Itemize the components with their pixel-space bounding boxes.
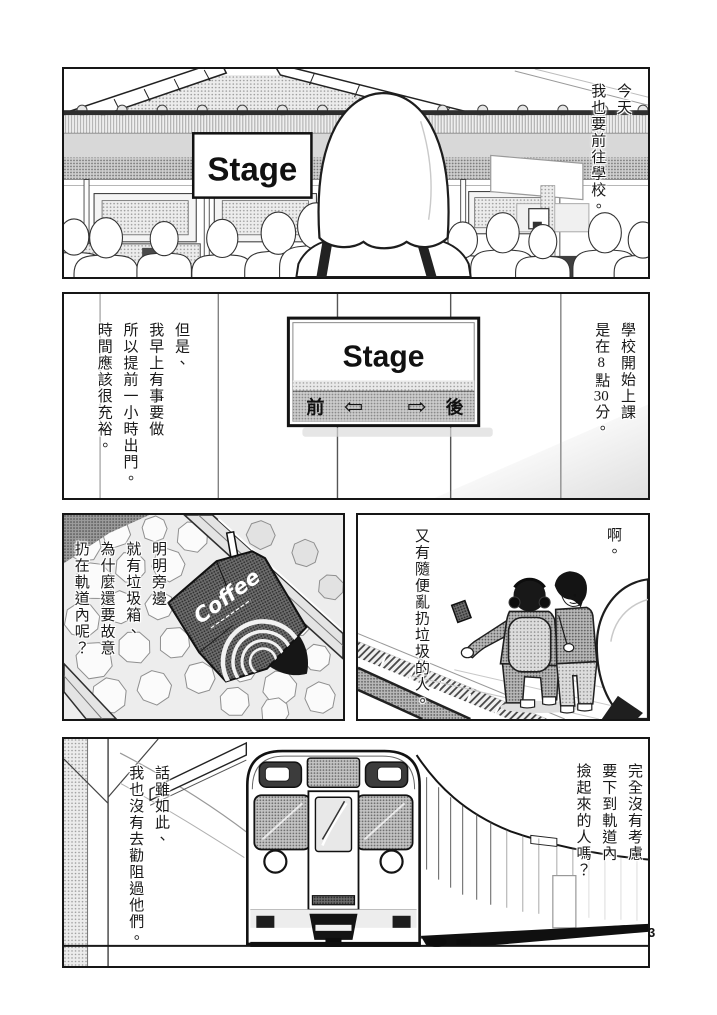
manga-page: Stage 今天 我也要前往學校。 [0, 0, 717, 1015]
student-right [555, 571, 597, 713]
headphone-icon [509, 597, 520, 608]
narration-column: 我也沒有去勸阻過他們。 [126, 765, 145, 961]
page-number: 3 [648, 925, 655, 940]
narration-column: 又有隨便亂扔垃圾的人。 [411, 528, 430, 718]
narration-column: 是在8點30分。 [592, 322, 611, 492]
step-plate [312, 896, 354, 905]
panel2-narration-left: 但是、 我早上有事要做 所以提前一小時出門。 時間應該很充裕。 [87, 322, 190, 494]
panel-4-train: 完全沒有考慮 要下到軌道內 撿起來的人嗎？ 話雖如此、 我也沒有去勸阻過他們。 [62, 737, 650, 968]
panel-2-sign: Stage 前 ⇦ ⇨ 後 學校開始上課 是在8點30分。 但是、 我早上有事要… [62, 292, 650, 500]
panel2-narration-right: 學校開始上課 是在8點30分。 [585, 322, 637, 492]
narration-column: 但是、 [171, 322, 190, 494]
narration-column: 學校開始上課 [617, 322, 636, 492]
direction-sign: Stage 前 ⇦ ⇨ 後 [288, 318, 478, 426]
thrown-carton [452, 601, 471, 623]
sign-back-label: 後 [446, 397, 464, 418]
stage-sign-hanging: Stage [193, 133, 311, 197]
train-front [247, 751, 420, 947]
narration-column: 為什麼還要故意 [97, 541, 116, 713]
panel-1-station: Stage 今天 我也要前往學校。 [62, 67, 650, 279]
narration-column: 所以提前一小時出門。 [120, 322, 139, 494]
narration-column: 明明旁邊 [148, 541, 167, 713]
sign-front-label: 前 [306, 397, 324, 418]
narration-column: 話雖如此、 [151, 765, 170, 961]
narration-column: 時間應該很充裕。 [94, 322, 113, 494]
left-arrow-icon: ⇦ [344, 394, 363, 420]
angled-board [491, 155, 583, 199]
narration-column: 就有垃圾箱、 [123, 541, 142, 713]
student-left [461, 579, 558, 708]
panel3-right-sfx: 啊。 [596, 527, 622, 587]
narration-column: 今天 [613, 83, 632, 263]
panel3-right-narration: 又有隨便亂扔垃圾的人。 [404, 528, 430, 718]
stage-sign-label: Stage [207, 151, 297, 188]
narration-column: 扔在軌道內呢？ [71, 541, 90, 713]
right-arrow-icon: ⇨ [407, 394, 426, 420]
direction-sign-label: Stage [343, 340, 425, 373]
sfx-text: 啊。 [603, 527, 622, 587]
panel1-narration: 今天 我也要前往學校。 [581, 83, 633, 263]
narration-column: 我早上有事要做 [146, 322, 165, 494]
narration-column: 要下到軌道內 [599, 763, 618, 943]
narration-column: 完全沒有考慮 [624, 763, 643, 943]
panel-1-art: Stage [64, 69, 648, 277]
panel-3-left-carton: Coffee 明明旁邊 就有垃圾箱、 為什麼還要故意 扔在軌道內呢？ [62, 513, 345, 721]
protagonist-head [597, 579, 648, 719]
headlight-right [381, 850, 403, 872]
panel4-narration-left: 話雖如此、 我也沒有去勸阻過他們。 [119, 765, 171, 961]
backpack [509, 618, 551, 672]
destination-board [307, 758, 359, 787]
sign-shadow [302, 428, 492, 437]
panel4-narration-right: 完全沒有考慮 要下到軌道內 撿起來的人嗎？ [566, 763, 643, 943]
panel3-left-narration: 明明旁邊 就有垃圾箱、 為什麼還要故意 扔在軌道內呢？ [64, 541, 167, 713]
narration-column: 撿起來的人嗎？ [573, 763, 592, 943]
headphone-icon [539, 597, 550, 608]
panel-3-right-litterers: 啊。 又有隨便亂扔垃圾的人。 [356, 513, 650, 721]
headlight-left [264, 850, 286, 872]
narration-column: 我也要前往學校。 [588, 83, 607, 263]
